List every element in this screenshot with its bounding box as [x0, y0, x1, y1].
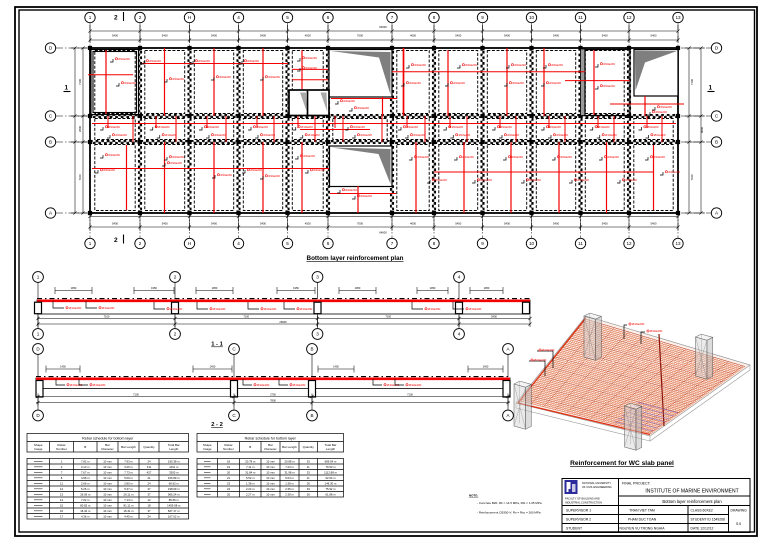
- svg-text:10 mm: 10 mm: [103, 476, 112, 480]
- svg-text:Ø10a200: Ø10a200: [428, 307, 441, 311]
- svg-text:5400: 5400: [162, 222, 168, 226]
- svg-text:Ø10a200: Ø10a200: [480, 178, 492, 182]
- svg-text:21: 21: [147, 476, 151, 480]
- svg-text:Ø10a200: Ø10a200: [264, 307, 277, 311]
- svg-text:1.38 m: 1.38 m: [285, 481, 294, 485]
- svg-text:Rebar schedule for bottom laye: Rebar schedule for bottom layer: [82, 436, 134, 440]
- svg-text:3: 3: [316, 332, 319, 337]
- svg-text:2.27 m: 2.27 m: [246, 492, 255, 496]
- svg-text:12: 12: [626, 241, 632, 246]
- svg-text:STUDENT ID 1549268: STUDENT ID 1549268: [691, 518, 726, 522]
- svg-text:Image: Image: [203, 447, 212, 451]
- svg-text:Ø10a200: Ø10a200: [102, 306, 115, 310]
- svg-text:Diameter: Diameter: [101, 447, 113, 451]
- svg-text:11: 11: [578, 15, 583, 20]
- svg-text:7: 7: [391, 15, 394, 20]
- svg-text:7.23 m: 7.23 m: [285, 465, 294, 469]
- svg-text:Ø10a200: Ø10a200: [551, 63, 563, 67]
- svg-text:Length: Length: [169, 447, 179, 451]
- svg-text:19: 19: [227, 465, 231, 469]
- svg-text:2: 2: [139, 15, 142, 20]
- svg-text:NATIONAL UNIVERSITY: NATIONAL UNIVERSITY: [582, 481, 611, 485]
- svg-text:2.66 m: 2.66 m: [81, 481, 90, 485]
- svg-text:21: 21: [227, 476, 231, 480]
- svg-text:18: 18: [147, 503, 151, 507]
- svg-text:Ø10a200: Ø10a200: [308, 133, 320, 137]
- svg-text:Ø10a200: Ø10a200: [305, 66, 317, 70]
- svg-text:20.78 m: 20.78 m: [245, 459, 256, 463]
- svg-text:Ø10a200: Ø10a200: [172, 155, 184, 159]
- svg-text:Ø10a200: Ø10a200: [219, 75, 231, 79]
- svg-text:2.24 m: 2.24 m: [246, 487, 255, 491]
- svg-text:Ø10a200: Ø10a200: [511, 155, 523, 159]
- svg-text:7100: 7100: [243, 314, 249, 318]
- svg-text:Rebar schedule for bottom laye: Rebar schedule for bottom layer: [245, 436, 297, 440]
- svg-text:1450: 1450: [210, 365, 216, 369]
- svg-text:1 - 1: 1 - 1: [211, 342, 223, 348]
- svg-text:607.17 m: 607.17 m: [168, 509, 180, 513]
- svg-text:Ø10a200: Ø10a200: [598, 125, 610, 129]
- svg-text:Ø10a200: Ø10a200: [165, 133, 177, 137]
- svg-text:7100: 7100: [407, 392, 413, 396]
- svg-text:31.98 m: 31.98 m: [284, 470, 295, 474]
- svg-text:10 mm: 10 mm: [103, 470, 112, 474]
- svg-text:25: 25: [227, 492, 231, 496]
- svg-text:1: 1: [89, 241, 92, 246]
- svg-text:Ø10a200: Ø10a200: [172, 77, 184, 81]
- svg-text:B: B: [84, 445, 86, 449]
- svg-text:Ø10a200: Ø10a200: [603, 62, 615, 66]
- svg-text:Ø10a200: Ø10a200: [343, 99, 355, 103]
- svg-text:1950: 1950: [151, 286, 157, 290]
- svg-text:Length: Length: [326, 447, 336, 451]
- svg-text:2: 2: [139, 241, 142, 246]
- svg-text:Bar Length: Bar Length: [121, 445, 136, 449]
- svg-text:1: 1: [89, 15, 92, 20]
- svg-text:198.69 m: 198.69 m: [168, 487, 180, 491]
- svg-text:Number: Number: [223, 447, 234, 451]
- svg-text:10 mm: 10 mm: [266, 487, 275, 491]
- svg-text:Ø10a200: Ø10a200: [247, 59, 259, 63]
- svg-text:3: 3: [316, 275, 319, 280]
- svg-text:Ø10a200: Ø10a200: [360, 133, 372, 137]
- svg-text:Quantity: Quantity: [303, 445, 315, 449]
- svg-text:16.32 m: 16.32 m: [80, 509, 91, 513]
- svg-text:20.88 m: 20.88 m: [284, 459, 295, 463]
- svg-text:8: 8: [433, 241, 436, 246]
- svg-text:13: 13: [675, 241, 681, 246]
- svg-text:H: H: [188, 15, 191, 20]
- svg-text:26.11 m: 26.11 m: [124, 492, 135, 496]
- svg-text:Reinforcement for WC slab pane: Reinforcement for WC slab panel: [570, 460, 674, 467]
- svg-text:7100: 7100: [690, 174, 694, 180]
- svg-text:Ø10a200: Ø10a200: [69, 306, 82, 310]
- svg-text:5400: 5400: [504, 222, 510, 226]
- svg-text:1950: 1950: [212, 286, 218, 290]
- svg-text:Ø10a200: Ø10a200: [603, 84, 615, 88]
- svg-text:10 mm: 10 mm: [266, 459, 275, 463]
- svg-text:Ø10a200: Ø10a200: [409, 383, 422, 387]
- svg-text:NGUYEN VU TRONG NGHIA: NGUYEN VU TRONG NGHIA: [620, 527, 666, 531]
- svg-text:61.88 m: 61.88 m: [325, 492, 336, 496]
- svg-text:Ø10a200: Ø10a200: [207, 125, 219, 129]
- svg-text:427: 427: [147, 470, 152, 474]
- svg-text:CLASS 60XE2: CLASS 60XE2: [691, 509, 713, 513]
- svg-text:Ø10a200: Ø10a200: [103, 168, 115, 172]
- svg-text:106.89 m: 106.89 m: [168, 476, 180, 480]
- svg-text:8: 8: [433, 15, 436, 20]
- svg-text:1: 1: [65, 85, 69, 92]
- svg-text:Ø10a200: Ø10a200: [158, 125, 170, 129]
- svg-text:Ø10a200: Ø10a200: [452, 125, 464, 129]
- svg-text:10 mm: 10 mm: [103, 503, 112, 507]
- svg-text:Ø10a200: Ø10a200: [529, 178, 541, 182]
- svg-text:4600: 4600: [410, 34, 416, 38]
- svg-text:5: 5: [286, 15, 289, 20]
- svg-text:64600: 64600: [379, 231, 387, 235]
- svg-text:Ø10a200: Ø10a200: [357, 106, 369, 110]
- svg-text:81.11 m: 81.11 m: [124, 503, 135, 507]
- svg-text:S.5: S.5: [736, 522, 741, 526]
- svg-text:Ø10a200: Ø10a200: [257, 383, 270, 387]
- svg-text:14: 14: [60, 498, 64, 502]
- svg-text:- Reinforcement CB300-V: Rs =: - Reinforcement CB300-V: Rs = Rsc = 260 …: [477, 511, 541, 515]
- svg-text:5400: 5400: [602, 34, 608, 38]
- svg-text:26600: 26600: [279, 320, 287, 324]
- svg-text:Diameter: Diameter: [264, 447, 276, 451]
- svg-text:4.98 m: 4.98 m: [81, 476, 90, 480]
- svg-text:2: 2: [114, 15, 118, 22]
- svg-text:3300 m: 3300 m: [169, 470, 179, 474]
- svg-text:23: 23: [227, 481, 231, 485]
- svg-text:Ø10a200: Ø10a200: [654, 133, 666, 137]
- svg-text:1950: 1950: [430, 286, 436, 290]
- svg-text:20: 20: [227, 470, 231, 474]
- svg-text:7: 7: [391, 241, 394, 246]
- svg-text:11: 11: [307, 465, 310, 469]
- svg-text:37: 37: [147, 509, 151, 513]
- svg-text:17: 17: [60, 514, 64, 518]
- svg-text:33: 33: [307, 459, 311, 463]
- svg-text:4600: 4600: [410, 222, 416, 226]
- svg-text:3.26 m: 3.26 m: [124, 465, 133, 469]
- svg-text:2.38 m: 2.38 m: [285, 492, 294, 496]
- svg-text:5400: 5400: [260, 34, 266, 38]
- svg-text:Ø10a200: Ø10a200: [353, 125, 365, 129]
- svg-text:1950: 1950: [71, 286, 77, 290]
- svg-text:31.84 m: 31.84 m: [245, 470, 256, 474]
- svg-text:10 mm: 10 mm: [266, 481, 275, 485]
- svg-text:10 mm: 10 mm: [103, 487, 112, 491]
- svg-text:2600: 2600: [78, 126, 82, 132]
- svg-text:Ø10a200: Ø10a200: [170, 307, 183, 311]
- svg-text:Bar Length: Bar Length: [282, 445, 297, 449]
- svg-text:5: 5: [286, 241, 289, 246]
- svg-text:Ø10a200: Ø10a200: [301, 125, 313, 129]
- svg-text:5.09 m: 5.09 m: [124, 476, 133, 480]
- svg-text:4500: 4500: [305, 34, 311, 38]
- svg-text:Ø10a200: Ø10a200: [149, 59, 161, 63]
- svg-text:Ø10a200: Ø10a200: [469, 307, 482, 311]
- svg-text:Ø10a200: Ø10a200: [414, 63, 426, 67]
- svg-text:5.37 m: 5.37 m: [124, 487, 133, 491]
- svg-text:75.92 m: 75.92 m: [325, 487, 336, 491]
- svg-text:Ø10a200: Ø10a200: [577, 178, 589, 182]
- svg-text:Ø10a200: Ø10a200: [305, 56, 317, 60]
- svg-text:INSTITUTE OF MARINE ENVIRONMEN: INSTITUTE OF MARINE ENVIRONMENT: [645, 489, 738, 495]
- svg-text:Ø10a200: Ø10a200: [534, 358, 547, 362]
- svg-text:13: 13: [60, 492, 64, 496]
- svg-text:Ø10a200: Ø10a200: [650, 329, 663, 333]
- svg-text:26: 26: [307, 492, 311, 496]
- svg-text:12: 12: [626, 15, 632, 20]
- svg-text:10 mm: 10 mm: [266, 465, 275, 469]
- svg-text:311: 311: [147, 465, 152, 469]
- svg-text:Ø10a200: Ø10a200: [303, 154, 315, 158]
- svg-text:10: 10: [529, 15, 535, 20]
- svg-text:Ø10a200: Ø10a200: [170, 161, 182, 165]
- svg-text:Ø10a200: Ø10a200: [507, 133, 519, 137]
- svg-text:5400: 5400: [553, 34, 559, 38]
- svg-text:64600: 64600: [379, 25, 387, 29]
- svg-text:1950: 1950: [355, 286, 361, 290]
- svg-text:Ø10a200: Ø10a200: [115, 133, 127, 137]
- svg-text:7100: 7100: [78, 174, 82, 180]
- svg-text:Ø10a200: Ø10a200: [263, 133, 275, 137]
- svg-text:INDUSTRIAL CONSTRUCTION: INDUSTRIAL CONSTRUCTION: [565, 500, 602, 504]
- svg-text:B: B: [310, 347, 313, 352]
- svg-text:Ø10a200: Ø10a200: [542, 348, 555, 352]
- svg-text:Ø10a200: Ø10a200: [660, 105, 672, 109]
- svg-text:Ø10a200: Ø10a200: [462, 155, 474, 159]
- svg-text:2700: 2700: [270, 392, 276, 396]
- svg-text:Ø10a200: Ø10a200: [198, 59, 210, 63]
- svg-text:80.82 m: 80.82 m: [80, 503, 91, 507]
- svg-text:1: 1: [37, 275, 40, 280]
- svg-text:10 mm: 10 mm: [103, 481, 112, 485]
- svg-text:107.02 m: 107.02 m: [168, 514, 180, 518]
- svg-text:5400: 5400: [455, 222, 461, 226]
- svg-text:7800: 7800: [270, 398, 276, 402]
- svg-text:33: 33: [307, 487, 311, 491]
- svg-text:Ø10a200: Ø10a200: [607, 155, 619, 159]
- svg-text:5400: 5400: [553, 222, 559, 226]
- svg-text:Ø10a200: Ø10a200: [549, 125, 561, 129]
- svg-text:5400: 5400: [211, 34, 217, 38]
- svg-text:5400: 5400: [602, 222, 608, 226]
- svg-text:7.82 m: 7.82 m: [81, 459, 90, 463]
- svg-text:Ø10a200: Ø10a200: [435, 178, 447, 182]
- svg-text:4: 4: [458, 275, 461, 280]
- svg-text:26: 26: [307, 481, 311, 485]
- svg-text:5400: 5400: [504, 34, 510, 38]
- svg-text:5400: 5400: [651, 34, 657, 38]
- svg-text:DRAWING: DRAWING: [731, 509, 748, 513]
- svg-text:37: 37: [147, 492, 151, 496]
- svg-text:Ø10a200: Ø10a200: [108, 125, 120, 129]
- svg-text:Bottom layer reinforcement pla: Bottom layer reinforcement plan: [662, 499, 722, 504]
- svg-text:STUDENT: STUDENT: [566, 527, 582, 531]
- svg-text:Ø10a200: Ø10a200: [668, 170, 680, 174]
- svg-text:Number: Number: [56, 447, 67, 451]
- svg-text:4: 4: [237, 241, 240, 246]
- svg-text:7.11 m: 7.11 m: [246, 465, 255, 469]
- svg-text:966.24 m: 966.24 m: [168, 492, 180, 496]
- svg-text:Ø10a200: Ø10a200: [647, 125, 659, 129]
- svg-text:7100: 7100: [385, 314, 391, 318]
- svg-text:12: 12: [147, 498, 151, 502]
- svg-text:10 mm: 10 mm: [103, 498, 112, 502]
- svg-text:Ø10a200: Ø10a200: [560, 155, 572, 159]
- svg-text:B: B: [49, 140, 52, 145]
- svg-text:DATE 12/12/12: DATE 12/12/12: [691, 527, 714, 531]
- svg-text:16: 16: [60, 509, 64, 513]
- svg-text:16.41 m: 16.41 m: [123, 509, 134, 513]
- svg-text:B: B: [310, 413, 313, 418]
- svg-text:85.56 m: 85.56 m: [169, 498, 180, 502]
- svg-text:TRAN VIET TAM: TRAN VIET TAM: [629, 509, 655, 513]
- svg-text:1450: 1450: [483, 365, 489, 369]
- svg-text:Ø10a200: Ø10a200: [268, 75, 280, 79]
- svg-text:7100: 7100: [78, 79, 82, 85]
- svg-text:SUPERVISOR 2: SUPERVISOR 2: [566, 518, 591, 522]
- svg-text:24: 24: [227, 487, 231, 491]
- svg-text:7100: 7100: [690, 79, 694, 85]
- svg-text:6: 6: [327, 15, 330, 20]
- svg-text:PHAM DUC TOAN: PHAM DUC TOAN: [628, 518, 657, 522]
- svg-text:66.62 m: 66.62 m: [169, 481, 180, 485]
- svg-text:5400: 5400: [455, 34, 461, 38]
- svg-text:Ø10a200: Ø10a200: [213, 307, 226, 311]
- svg-text:3.13 m: 3.13 m: [81, 465, 90, 469]
- svg-text:Ø10a200: Ø10a200: [625, 178, 637, 182]
- svg-text:5.52 m: 5.52 m: [246, 476, 255, 480]
- svg-text:Ø10a200: Ø10a200: [653, 155, 665, 159]
- svg-text:FACULTY OF BUILDING AND: FACULTY OF BUILDING AND: [565, 497, 600, 501]
- svg-text:B: B: [715, 140, 718, 145]
- svg-text:2: 2: [174, 332, 177, 337]
- svg-text:Ø10a200: Ø10a200: [514, 63, 526, 67]
- svg-text:NOTE:: NOTE:: [469, 494, 478, 498]
- svg-text:1950: 1950: [484, 286, 490, 290]
- svg-text:10 mm: 10 mm: [103, 492, 112, 496]
- svg-text:Ø10a200: Ø10a200: [409, 81, 421, 85]
- svg-text:13: 13: [675, 15, 681, 20]
- svg-text:24: 24: [147, 459, 151, 463]
- svg-text:Ø10a200: Ø10a200: [250, 168, 262, 172]
- svg-text:2: 2: [174, 275, 177, 280]
- svg-text:Ø10a200: Ø10a200: [118, 57, 130, 61]
- svg-text:7.02 m: 7.02 m: [81, 498, 90, 502]
- svg-text:10 mm: 10 mm: [103, 514, 112, 518]
- svg-text:Ø10a200: Ø10a200: [459, 133, 471, 137]
- svg-text:24: 24: [147, 514, 151, 518]
- svg-text:Quantity: Quantity: [143, 445, 155, 449]
- svg-text:Ø10a200: Ø10a200: [360, 194, 372, 198]
- svg-text:1450: 1450: [333, 365, 339, 369]
- svg-text:5400: 5400: [112, 34, 118, 38]
- svg-text:689.04 m: 689.04 m: [325, 459, 337, 463]
- svg-text:6: 6: [327, 241, 330, 246]
- svg-text:1011 m: 1011 m: [169, 465, 179, 469]
- svg-text:Ø10a200: Ø10a200: [549, 81, 561, 85]
- svg-text:Ø10a200: Ø10a200: [256, 125, 268, 129]
- svg-text:Image: Image: [34, 447, 43, 451]
- svg-text:2.35 m: 2.35 m: [285, 487, 294, 491]
- svg-text:- Concrete B20: Rb = 14.5 MPa,: - Concrete B20: Rb = 14.5 MPa, Rbt = 1.0…: [477, 501, 542, 505]
- svg-text:8600: 8600: [700, 127, 704, 133]
- svg-text:190.38 m: 190.38 m: [168, 459, 180, 463]
- svg-text:10 mm: 10 mm: [266, 476, 275, 480]
- svg-text:2: 2: [114, 237, 118, 244]
- svg-text:4.45 m: 4.45 m: [124, 514, 133, 518]
- svg-text:15: 15: [60, 503, 64, 507]
- svg-text:4.36 m: 4.36 m: [81, 514, 90, 518]
- svg-text:Ø10a200: Ø10a200: [500, 125, 512, 129]
- svg-text:5.64 m: 5.64 m: [285, 476, 294, 480]
- svg-text:Ø10a200: Ø10a200: [214, 133, 226, 137]
- svg-text:146.30 m: 146.30 m: [325, 481, 337, 485]
- svg-text:10 mm: 10 mm: [103, 509, 112, 513]
- svg-text:5400: 5400: [651, 222, 657, 226]
- svg-text:1: 1: [709, 85, 713, 92]
- svg-text:5400: 5400: [491, 314, 497, 318]
- svg-text:10 mm: 10 mm: [103, 459, 112, 463]
- svg-text:OF CIVIL ENGINEERING: OF CIVIL ENGINEERING: [582, 485, 612, 489]
- svg-text:9: 9: [481, 15, 484, 20]
- svg-text:7.13 m: 7.13 m: [124, 498, 133, 502]
- svg-text:7100: 7100: [104, 314, 110, 318]
- svg-text:B: B: [249, 445, 251, 449]
- svg-text:Ø10a200: Ø10a200: [512, 81, 524, 85]
- svg-text:Ø10a200: Ø10a200: [413, 133, 425, 137]
- svg-text:Bottom layer reinforcement pla: Bottom layer reinforcement plan: [307, 255, 404, 262]
- svg-text:7.67 m: 7.67 m: [81, 470, 90, 474]
- svg-text:79.53 m: 79.53 m: [325, 465, 336, 469]
- svg-text:Ø10a200: Ø10a200: [93, 383, 106, 387]
- svg-text:Ø10a200: Ø10a200: [453, 81, 465, 85]
- svg-text:Ø10a200: Ø10a200: [300, 307, 313, 311]
- svg-text:62.04 m: 62.04 m: [325, 476, 336, 480]
- svg-text:7100: 7100: [133, 392, 139, 396]
- svg-text:7.73 m: 7.73 m: [124, 470, 133, 474]
- svg-text:11: 11: [60, 481, 63, 485]
- svg-text:5400: 5400: [112, 222, 118, 226]
- svg-text:5400: 5400: [211, 222, 217, 226]
- svg-text:7000: 7000: [357, 222, 363, 226]
- svg-text:Ø10a200: Ø10a200: [632, 322, 645, 326]
- svg-text:11: 11: [307, 476, 310, 480]
- svg-text:4500: 4500: [305, 222, 311, 226]
- svg-text:1450: 1450: [60, 365, 66, 369]
- svg-text:Ø10a200: Ø10a200: [406, 125, 418, 129]
- svg-text:7000: 7000: [357, 34, 363, 38]
- svg-text:Ø10a200: Ø10a200: [108, 153, 120, 157]
- svg-text:Ø10a200: Ø10a200: [655, 110, 667, 114]
- svg-text:10 mm: 10 mm: [266, 470, 275, 474]
- svg-text:Ø10a200: Ø10a200: [220, 173, 232, 177]
- svg-text:1112.88 m: 1112.88 m: [324, 470, 337, 474]
- svg-text:5400: 5400: [162, 34, 168, 38]
- svg-text:2 - 2: 2 - 2: [211, 422, 223, 428]
- svg-text:5.26 m: 5.26 m: [81, 487, 90, 491]
- svg-text:10 mm: 10 mm: [266, 492, 275, 496]
- svg-text:4: 4: [237, 15, 240, 20]
- svg-text:Ø10a200: Ø10a200: [268, 174, 280, 178]
- svg-text:Ø10a200: Ø10a200: [556, 133, 568, 137]
- svg-text:FINAL PROJECT:: FINAL PROJECT:: [622, 482, 651, 486]
- svg-text:Ø10a200: Ø10a200: [605, 133, 617, 137]
